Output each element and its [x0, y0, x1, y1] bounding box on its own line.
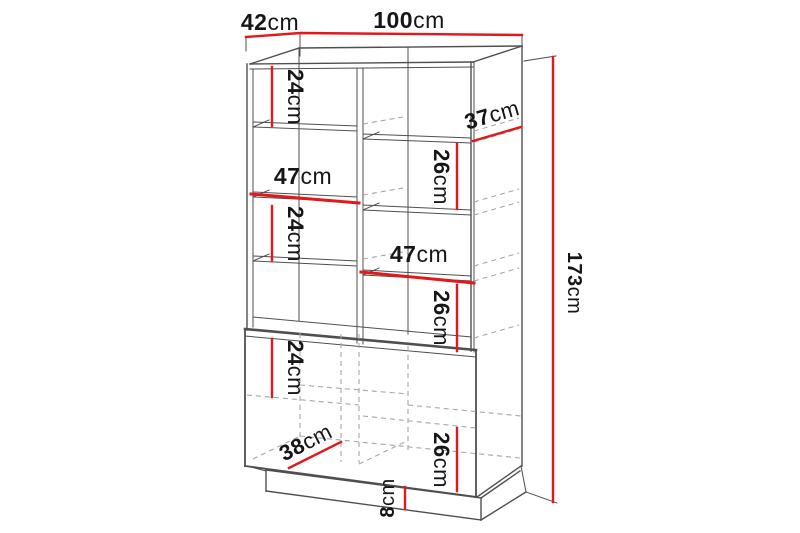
label-right-shelf-width: 47cm — [390, 241, 448, 267]
label-mid-left-gap: 24cm — [283, 206, 308, 262]
label-height-total: 173cm — [563, 252, 585, 315]
label-mid-right-gap: 26cm — [429, 290, 454, 346]
label-width-top: 100cm — [373, 7, 445, 33]
dim-line-47-2 — [361, 272, 474, 283]
dimension-labels: 42cm 100cm 173cm 24cm 37cm 26cm 47cm 24c… — [241, 7, 585, 518]
dim-line-47-1 — [251, 194, 359, 203]
label-left-shelf-width: 47cm — [274, 163, 332, 189]
label-depth-top: 42cm — [241, 9, 299, 35]
cabinet-drawing: 42cm 100cm 173cm 24cm 37cm 26cm 47cm 24c… — [0, 0, 800, 533]
label-lower-right-gap: 26cm — [429, 432, 454, 488]
furniture-dimension-diagram: 42cm 100cm 173cm 24cm 37cm 26cm 47cm 24c… — [0, 0, 800, 533]
label-upper-right-gap: 26cm — [429, 149, 454, 205]
label-plinth-height: 8cm — [377, 478, 399, 517]
label-lower-left-gap: 24cm — [283, 340, 308, 396]
label-upper-left-gap: 24cm — [283, 69, 308, 125]
